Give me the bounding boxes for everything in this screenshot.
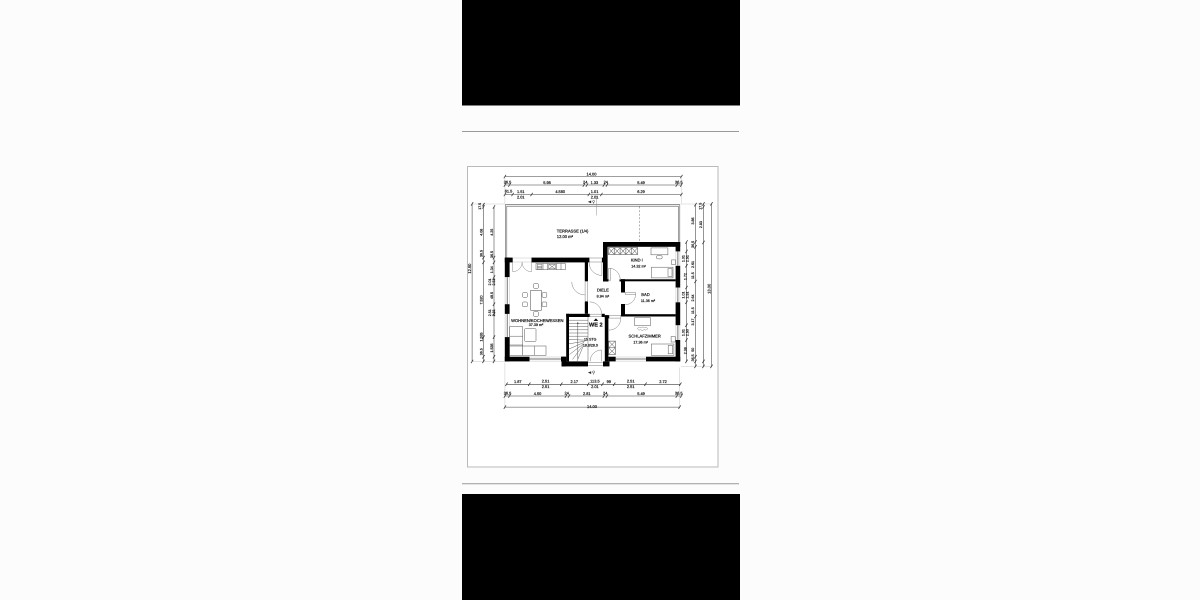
svg-text:113.5: 113.5 xyxy=(590,379,599,384)
svg-text:15 STG: 15 STG xyxy=(584,337,597,341)
svg-text:4.25: 4.25 xyxy=(490,229,494,236)
svg-text:18.8/28.0: 18.8/28.0 xyxy=(583,343,598,347)
svg-text:3.17: 3.17 xyxy=(691,319,695,326)
svg-text:2.51: 2.51 xyxy=(542,384,550,389)
svg-text:2.81: 2.81 xyxy=(492,309,496,316)
svg-text:KIND I: KIND I xyxy=(631,258,643,263)
svg-text:TERRASSE (1/4): TERRASSE (1/4) xyxy=(557,229,589,234)
svg-text:8.94 m²: 8.94 m² xyxy=(597,294,610,298)
svg-text:6.29: 6.29 xyxy=(637,189,645,194)
svg-text:2.51: 2.51 xyxy=(686,255,690,262)
svg-text:2.01: 2.01 xyxy=(517,194,525,199)
svg-text:36.5: 36.5 xyxy=(691,241,695,248)
svg-text:2.51: 2.51 xyxy=(492,279,496,286)
svg-text:2.64: 2.64 xyxy=(691,295,695,302)
svg-text:49.5: 49.5 xyxy=(490,292,494,299)
svg-text:13.00: 13.00 xyxy=(706,283,711,294)
svg-text:12.00 m²: 12.00 m² xyxy=(557,234,574,239)
svg-text:5.49: 5.49 xyxy=(637,180,645,185)
svg-text:36.5: 36.5 xyxy=(479,250,483,257)
svg-text:2.61: 2.61 xyxy=(691,261,695,268)
svg-text:1.535: 1.535 xyxy=(479,333,483,342)
svg-text:1.535: 1.535 xyxy=(490,344,494,353)
svg-text:36.5: 36.5 xyxy=(479,348,483,355)
svg-text:11.5: 11.5 xyxy=(691,307,695,314)
svg-text:2.01: 2.01 xyxy=(591,384,599,389)
svg-text:14.00: 14.00 xyxy=(586,171,597,176)
svg-text:2.50: 2.50 xyxy=(686,329,690,336)
svg-text:1.72: 1.72 xyxy=(684,273,688,280)
svg-text:36.5: 36.5 xyxy=(490,251,494,258)
svg-text:17.36 m²: 17.36 m² xyxy=(633,341,648,345)
svg-text:2.01: 2.01 xyxy=(591,194,599,199)
svg-text:7.520: 7.520 xyxy=(479,296,483,305)
svg-text:14.32 m²: 14.32 m² xyxy=(631,265,646,269)
svg-text:5.98: 5.98 xyxy=(543,180,551,185)
svg-text:2.72: 2.72 xyxy=(659,379,667,384)
svg-text:2.51: 2.51 xyxy=(627,379,635,384)
svg-text:61.5: 61.5 xyxy=(505,189,513,194)
svg-text:2.51: 2.51 xyxy=(627,384,635,389)
svg-text:17.5: 17.5 xyxy=(698,203,702,210)
svg-text:1.87: 1.87 xyxy=(514,379,522,384)
svg-text:11.5: 11.5 xyxy=(691,272,695,279)
svg-text:36.5: 36.5 xyxy=(675,390,683,395)
svg-text:17.5: 17.5 xyxy=(478,203,482,210)
svg-text:2.51: 2.51 xyxy=(542,379,550,384)
svg-text:1.33: 1.33 xyxy=(591,180,599,185)
svg-text:BAD: BAD xyxy=(641,292,649,297)
svg-text:37.39 m²: 37.39 m² xyxy=(529,323,544,327)
svg-text:36.5: 36.5 xyxy=(675,179,683,184)
svg-text:2.17: 2.17 xyxy=(571,379,579,384)
svg-text:1.34: 1.34 xyxy=(490,266,494,273)
svg-text:2.38: 2.38 xyxy=(684,347,688,354)
svg-text:WE 2: WE 2 xyxy=(589,323,603,329)
svg-text:4.580: 4.580 xyxy=(555,189,566,194)
svg-text:SCHLAFZIMMER: SCHLAFZIMMER xyxy=(629,334,661,339)
svg-text:4.50: 4.50 xyxy=(534,391,542,396)
svg-text:36.5: 36.5 xyxy=(691,354,695,361)
svg-text:2.81: 2.81 xyxy=(583,391,591,396)
svg-text:2.83: 2.83 xyxy=(699,221,703,228)
svg-text:36.5: 36.5 xyxy=(504,179,512,184)
svg-text:36.5: 36.5 xyxy=(504,390,512,395)
svg-text:12.50: 12.50 xyxy=(467,263,472,274)
svg-text:4.08: 4.08 xyxy=(479,229,483,236)
svg-text:5.49: 5.49 xyxy=(637,391,645,396)
svg-text:3.86: 3.86 xyxy=(691,218,695,225)
svg-text:2.51: 2.51 xyxy=(686,292,690,299)
svg-text:11.36 m²: 11.36 m² xyxy=(641,299,656,303)
svg-text:14.00: 14.00 xyxy=(587,404,598,409)
svg-text:DIELE: DIELE xyxy=(597,287,609,292)
svg-text:50: 50 xyxy=(691,348,695,352)
svg-text:99: 99 xyxy=(607,379,611,384)
